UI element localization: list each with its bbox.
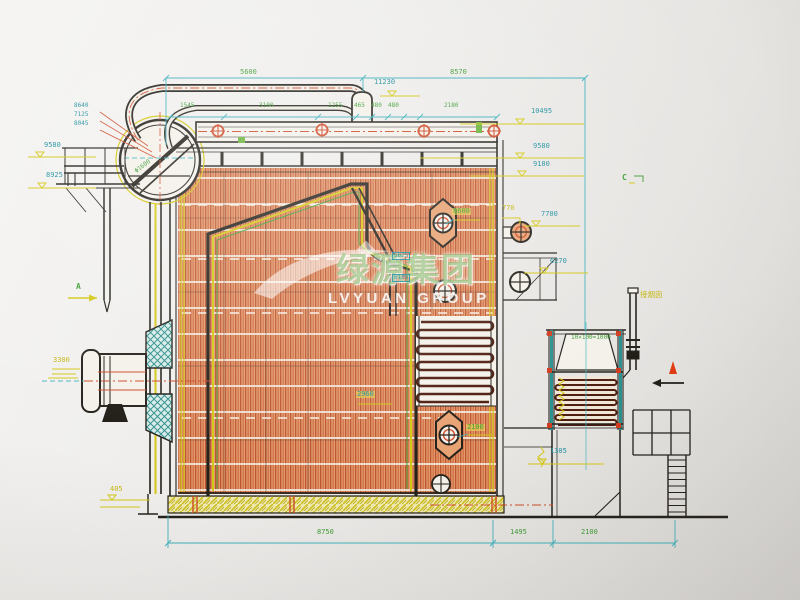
- dim-bottom-8750: 8750: [317, 529, 334, 536]
- note-to-chimney: 接烟囱: [640, 291, 663, 299]
- flow-arrow: [652, 361, 684, 387]
- green-fitting-2: [238, 137, 245, 143]
- dim-row-480b: 480: [388, 103, 399, 109]
- red-cone-marker: [669, 361, 677, 374]
- dim-row-1545: 1545: [180, 103, 194, 109]
- level-9180: 9180: [533, 161, 550, 168]
- boiler-cad-drawing: [0, 0, 800, 600]
- level-8925: 8925: [46, 172, 63, 179]
- stack-tag-2: 7125: [74, 112, 88, 118]
- level-6270: 6270: [550, 258, 567, 265]
- pipe-tag-5625: 5625: [392, 252, 410, 260]
- level-burner-3300: 3300: [53, 357, 70, 364]
- dim-bottom-1495: 1495: [510, 529, 527, 536]
- level-base-405: 405: [110, 486, 123, 493]
- callout-manhole-2100: 2100: [466, 424, 485, 431]
- door-circle-mid: [434, 280, 456, 302]
- level-11230: 11230: [374, 79, 395, 86]
- stack-tag-1: 8640: [74, 103, 88, 109]
- dim-row-3100: 3100: [259, 103, 273, 109]
- callout-eco-pitch: 10×100=1000: [571, 335, 611, 341]
- photographed-boiler-drawing: 绿源集团 LVYUAN GROUP 5600 8570 1545 3100 12…: [0, 0, 800, 600]
- dim-bottom-2100: 2100: [581, 529, 598, 536]
- callout-manhole-8600: 8600: [452, 208, 471, 215]
- level-10495: 10495: [531, 108, 552, 115]
- stair-ladder: [633, 410, 690, 517]
- dim-top-5600: 5600: [240, 69, 257, 76]
- base-frame: [138, 494, 728, 517]
- stack-tag-3: 8045: [74, 121, 88, 127]
- door-circle-bottom: [432, 475, 450, 493]
- dim-top-8570: 8570: [450, 69, 467, 76]
- chimney-pipe: [623, 288, 640, 378]
- rear-nozzle-7700: [503, 222, 531, 242]
- level-7700: 7700: [541, 211, 558, 218]
- section-marker-c: C: [622, 174, 627, 182]
- roof-header: [176, 122, 501, 166]
- callout-2960: 2960: [356, 391, 375, 398]
- pipe-tag-6105: 6105: [392, 274, 410, 282]
- level-9580-right: 9580: [533, 143, 550, 150]
- dim-row-480a: 480: [371, 103, 382, 109]
- manhole-hex-lower: [436, 411, 462, 459]
- dim-row-465: 465: [354, 103, 365, 109]
- dim-row-1255: 1255: [328, 103, 342, 109]
- level-9580-left: 9580: [44, 142, 61, 149]
- label-770: 770: [502, 205, 515, 212]
- dim-row-2180: 2180: [444, 103, 458, 109]
- section-marker-a: A: [76, 283, 81, 291]
- level-1305: 1305: [550, 448, 567, 455]
